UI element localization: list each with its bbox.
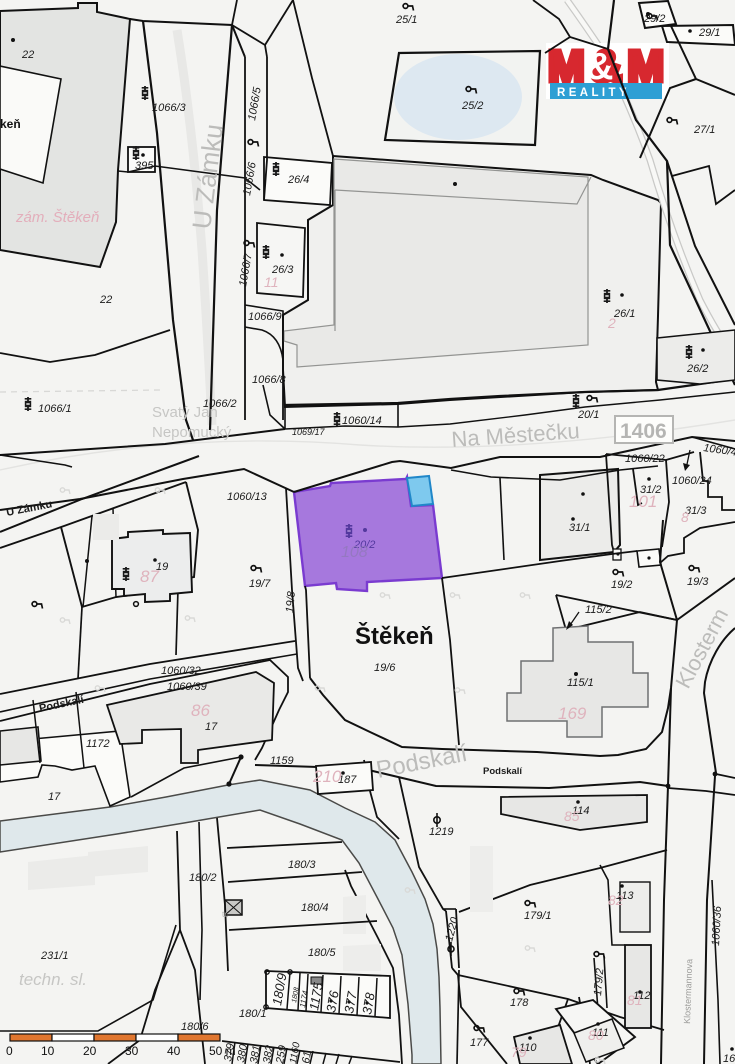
svg-text:177: 177 [470, 1037, 489, 1049]
svg-text:1219: 1219 [429, 826, 453, 838]
svg-text:1069/17: 1069/17 [292, 427, 326, 437]
svg-text:1066/1: 1066/1 [38, 403, 72, 415]
svg-text:180/2: 180/2 [189, 872, 217, 884]
svg-text:61: 61 [300, 1050, 314, 1064]
svg-text:180/4: 180/4 [301, 902, 329, 914]
svg-text:81: 81 [627, 992, 643, 1008]
svg-text:8: 8 [681, 509, 689, 525]
svg-text:16: 16 [723, 1053, 735, 1064]
svg-text:22: 22 [21, 49, 34, 61]
svg-text:40: 40 [167, 1044, 181, 1058]
svg-text:11: 11 [264, 274, 279, 290]
svg-text:10: 10 [41, 1044, 55, 1058]
svg-text:1060/22: 1060/22 [625, 453, 665, 465]
svg-text:80: 80 [588, 1027, 604, 1043]
svg-text:REALITY: REALITY [557, 87, 630, 99]
svg-text:29/2: 29/2 [643, 13, 665, 25]
svg-text:2: 2 [607, 315, 616, 331]
svg-text:25/1: 25/1 [395, 14, 417, 26]
svg-text:26/2: 26/2 [686, 363, 708, 375]
svg-text:1406: 1406 [620, 420, 667, 443]
svg-text:31/1: 31/1 [569, 522, 590, 534]
svg-text:115/2: 115/2 [585, 604, 612, 616]
svg-text:395: 395 [135, 160, 154, 172]
svg-text:108: 108 [341, 544, 368, 561]
svg-text:19/3: 19/3 [687, 576, 709, 588]
svg-text:1060/13: 1060/13 [227, 491, 268, 503]
svg-text:87: 87 [140, 567, 159, 586]
svg-text:19/8: 19/8 [284, 590, 298, 613]
svg-text:1066/3: 1066/3 [152, 102, 187, 114]
svg-text:1060/32: 1060/32 [161, 665, 201, 677]
svg-text:25/2: 25/2 [461, 100, 483, 112]
svg-text:115/1: 115/1 [567, 677, 594, 689]
svg-text:178: 178 [510, 997, 529, 1009]
svg-text:82: 82 [608, 892, 624, 908]
svg-text:180/6: 180/6 [181, 1021, 209, 1033]
svg-text:Podskalí: Podskalí [483, 766, 522, 777]
svg-text:26/1: 26/1 [613, 308, 635, 320]
svg-text:1066/8: 1066/8 [252, 374, 287, 386]
svg-text:Svatý Jan: Svatý Jan [152, 404, 218, 421]
svg-text:tr.: tr. [222, 910, 229, 919]
svg-text:19/6: 19/6 [374, 662, 396, 674]
svg-text:20/1: 20/1 [577, 409, 599, 421]
svg-text:79: 79 [511, 1044, 527, 1060]
svg-text:0: 0 [6, 1044, 13, 1058]
svg-text:22: 22 [99, 294, 112, 306]
svg-text:26/4: 26/4 [287, 174, 309, 186]
svg-text:180/3: 180/3 [288, 859, 316, 871]
svg-text:19/2: 19/2 [611, 579, 632, 591]
svg-text:zám. Štěkeň: zám. Štěkeň [15, 209, 99, 226]
svg-text:179/2: 179/2 [592, 968, 606, 996]
svg-text:179/1: 179/1 [524, 910, 552, 922]
svg-text:1159: 1159 [270, 755, 294, 767]
svg-text:27/1: 27/1 [693, 124, 715, 136]
svg-text:19/7: 19/7 [249, 578, 271, 590]
svg-text:keň: keň [0, 117, 21, 131]
svg-text:1060/36: 1060/36 [710, 905, 724, 946]
svg-text:1060/14: 1060/14 [342, 415, 382, 427]
svg-text:1060/24: 1060/24 [672, 475, 712, 487]
svg-text:30: 30 [125, 1044, 139, 1058]
svg-text:1172: 1172 [86, 738, 110, 750]
svg-text:210: 210 [312, 767, 342, 786]
svg-text:169: 169 [558, 704, 587, 723]
svg-text:231/1: 231/1 [40, 950, 69, 962]
svg-text:1066/9: 1066/9 [248, 311, 282, 323]
svg-text:50 m: 50 m [209, 1044, 236, 1058]
svg-text:29/1: 29/1 [698, 27, 720, 39]
svg-text:180/1: 180/1 [239, 1008, 267, 1020]
svg-text:techn. sl.: techn. sl. [19, 970, 87, 989]
svg-text:Nepomucký: Nepomucký [152, 424, 232, 441]
svg-text:180/5: 180/5 [308, 947, 336, 959]
svg-text:17: 17 [205, 721, 218, 733]
svg-text:85: 85 [564, 808, 580, 824]
svg-text:86: 86 [191, 701, 210, 720]
svg-text:Štěkeň: Štěkeň [355, 622, 434, 650]
svg-text:17: 17 [48, 791, 61, 803]
svg-text:1060/39: 1060/39 [167, 681, 207, 693]
svg-text:101: 101 [629, 492, 657, 511]
svg-text:20: 20 [83, 1044, 97, 1058]
